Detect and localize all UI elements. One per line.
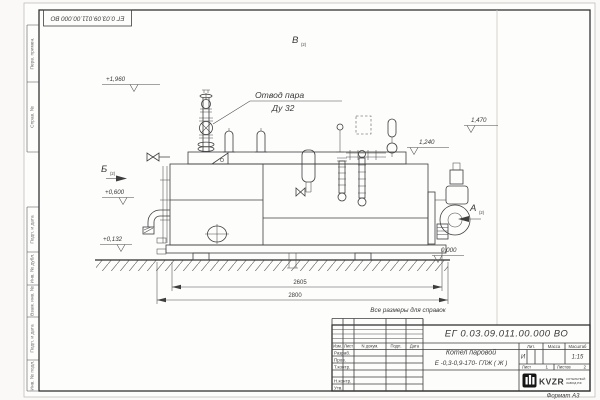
titleblock-doc-number: ЕГ 0.03.09.011.00.000 ВО	[445, 329, 569, 340]
product-name-line1: Котел паровой	[446, 349, 496, 357]
stamp-inv-dubl: Инв. № дубл.	[30, 254, 36, 284]
sheets-label: Листов	[557, 365, 571, 370]
col-ndoc: N докум.	[362, 344, 379, 349]
elevation-0600-label: +0,600	[105, 189, 125, 196]
view-a-letter: А	[469, 203, 476, 214]
row-tkontr: Т.контр.	[334, 364, 350, 369]
sheet-label: Лист	[522, 365, 531, 370]
dimension-2800-label: 2800	[288, 293, 302, 299]
row-razrab: Разраб.	[334, 350, 350, 355]
stamp-podp-data-1: Подп. и дата	[30, 215, 36, 244]
kvzr-logo-text: KVZR	[539, 377, 564, 387]
kvzr-logo-sub1: КОТЕЛЬНЫЙ	[566, 377, 585, 381]
elevation-0132-label: +0,132	[103, 236, 123, 243]
scale-header: Масштаб	[569, 344, 588, 349]
elevation-1960-label: +1,960	[106, 76, 126, 83]
scale-value: 1:15	[572, 355, 584, 361]
elevation-1470-label: 1,470	[471, 117, 487, 124]
callout-line2: Ду 32	[271, 103, 295, 113]
row-prov: Пров.	[334, 357, 346, 362]
stamp-vzam-inv: Взам. инв. №	[30, 286, 36, 316]
stamp-inv-podl: Инв. № подл.	[30, 361, 36, 391]
col-podp: Подп.	[390, 344, 401, 349]
boiler-drawing-svg: Перв. примен. Справ. № Подп. и дата Инв.…	[0, 0, 600, 400]
corner-doc-number: ЕГ 0.03.09.011.00.000 ВО	[50, 15, 124, 22]
row-utv: Утв.	[334, 385, 343, 390]
ground-hatching	[96, 261, 448, 272]
kvzr-logo-sub2: ЗАВОД РФ	[566, 381, 582, 385]
view-a-sub: (2)	[479, 210, 485, 215]
lit-header: Лит.	[527, 344, 535, 349]
elevation-1240-label: 1,240	[419, 139, 435, 146]
row-nkontr: Н.контр.	[334, 378, 351, 383]
view-v-letter: В	[292, 35, 299, 46]
mass-header: Масса	[548, 344, 561, 349]
stamp-perv-primen: Перв. примен.	[30, 38, 36, 70]
elevation-0000-label: 0,000	[441, 247, 457, 254]
view-b-letter: Б	[101, 164, 107, 175]
stamp-sprav-no: Справ. №	[30, 106, 36, 128]
product-name-line2: Е -0,3-0,9-170- ГЛЖ ( Ж )	[435, 360, 508, 367]
col-data: Дата	[410, 344, 420, 349]
format-note: Формат А3	[547, 394, 580, 400]
drawing-sheet: Перв. примен. Справ. № Подп. и дата Инв.…	[0, 0, 600, 400]
stamp-podp-data-2: Подп. и дата	[30, 324, 36, 353]
lit-value: И	[521, 355, 526, 361]
callout-line1: Отвод пара	[255, 90, 304, 100]
dimension-2605-label: 2605	[293, 280, 307, 286]
view-v-sub: (2)	[301, 42, 307, 47]
view-b-sub: (2)	[110, 171, 116, 176]
col-izm: Изм.	[333, 344, 342, 349]
col-list: Лист	[344, 344, 353, 349]
reference-note: Все размеры для справок	[370, 306, 446, 314]
